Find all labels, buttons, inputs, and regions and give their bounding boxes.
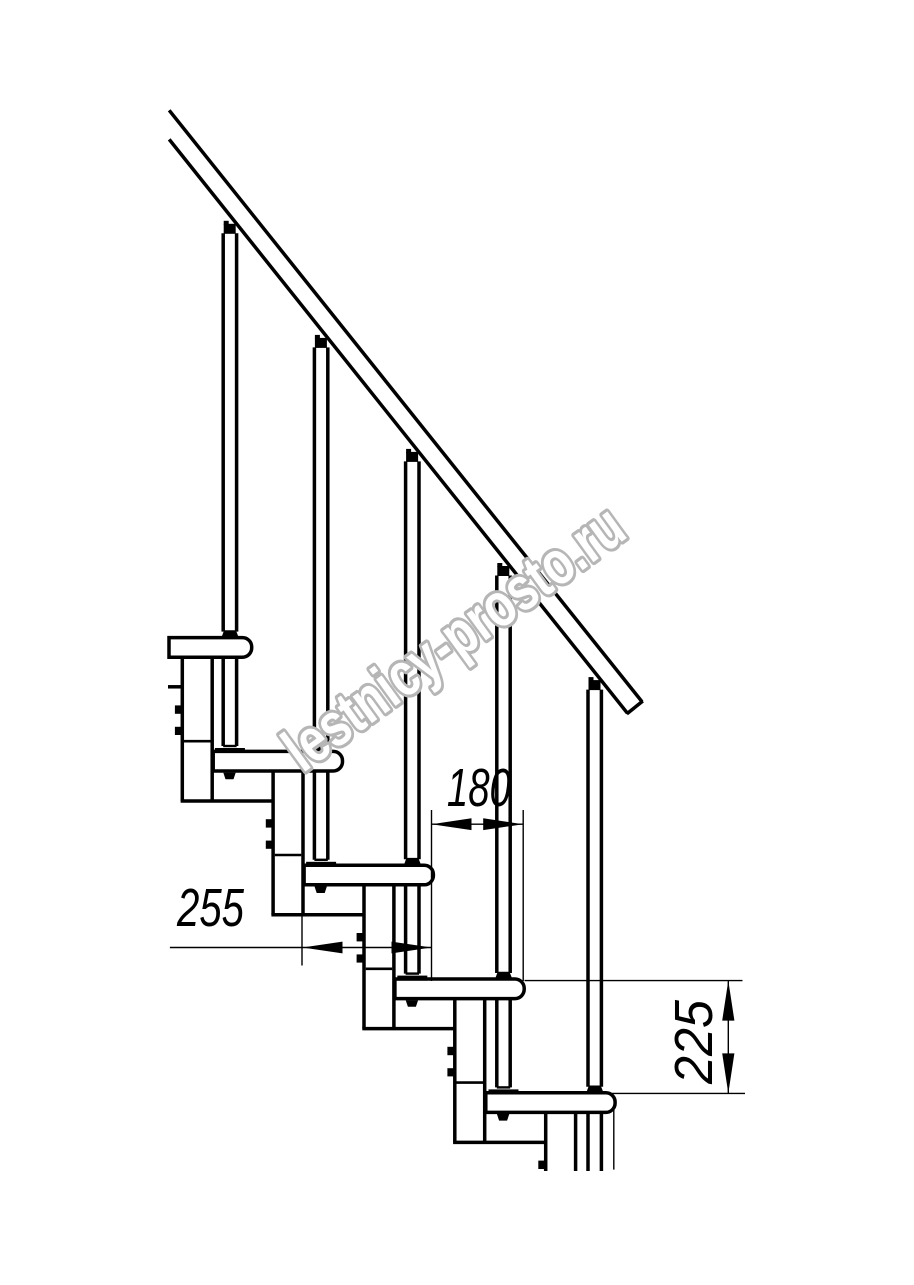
svg-text:225: 225 [664, 999, 724, 1085]
svg-text:180: 180 [447, 758, 511, 818]
svg-text:255: 255 [176, 878, 244, 938]
